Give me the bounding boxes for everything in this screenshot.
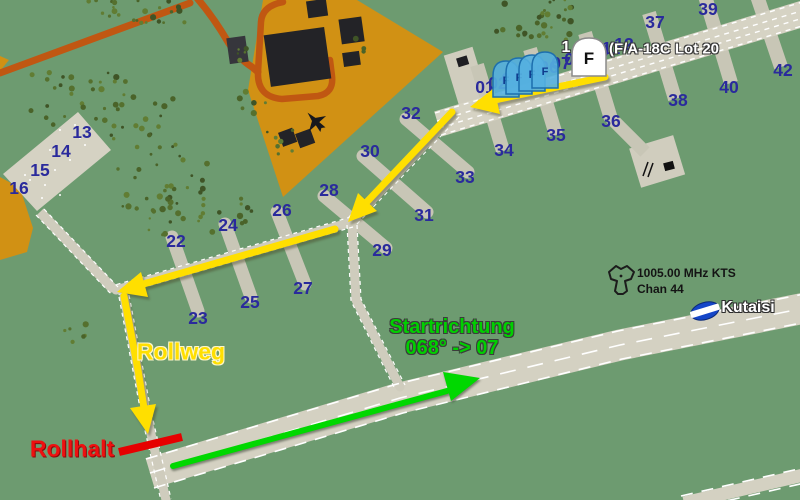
parking-number: 25 [240, 292, 260, 312]
parking-number: 33 [455, 167, 475, 187]
static-aircraft-icon[interactable]: F [532, 52, 558, 88]
parking-number: 16 [9, 178, 29, 198]
parking-number: 37 [645, 12, 664, 32]
airport-map: 0102030405060708091011121314151622232425… [0, 0, 800, 500]
parking-number: 27 [293, 278, 312, 298]
parking-number: 35 [546, 125, 566, 145]
parking-number: 31 [414, 205, 434, 225]
parking-number: 13 [72, 122, 92, 142]
parking-number: 39 [698, 0, 718, 19]
parking-number: 12 [614, 34, 634, 54]
svg-text:F: F [542, 66, 549, 78]
parking-number: 28 [319, 180, 339, 200]
parking-number: 26 [272, 200, 292, 220]
parking-number: 30 [360, 141, 380, 161]
map-canvas: 0102030405060708091011121314151622232425… [0, 0, 800, 500]
parking-number: 22 [166, 231, 186, 251]
parking-number: 36 [601, 111, 621, 131]
parking-number: 29 [372, 240, 392, 260]
parking-number: 32 [401, 103, 421, 123]
parking-number: 38 [668, 90, 688, 110]
parking-number: 42 [773, 60, 793, 80]
svg-text:F: F [584, 49, 594, 68]
parking-number: 34 [494, 140, 514, 160]
parking-number: 24 [218, 215, 238, 235]
parking-number: 15 [30, 160, 50, 180]
aircraft-group-icon[interactable]: F [572, 38, 606, 76]
parking-number: 40 [719, 77, 739, 97]
parking-number: 14 [51, 141, 71, 161]
parking-number: 23 [188, 308, 208, 328]
